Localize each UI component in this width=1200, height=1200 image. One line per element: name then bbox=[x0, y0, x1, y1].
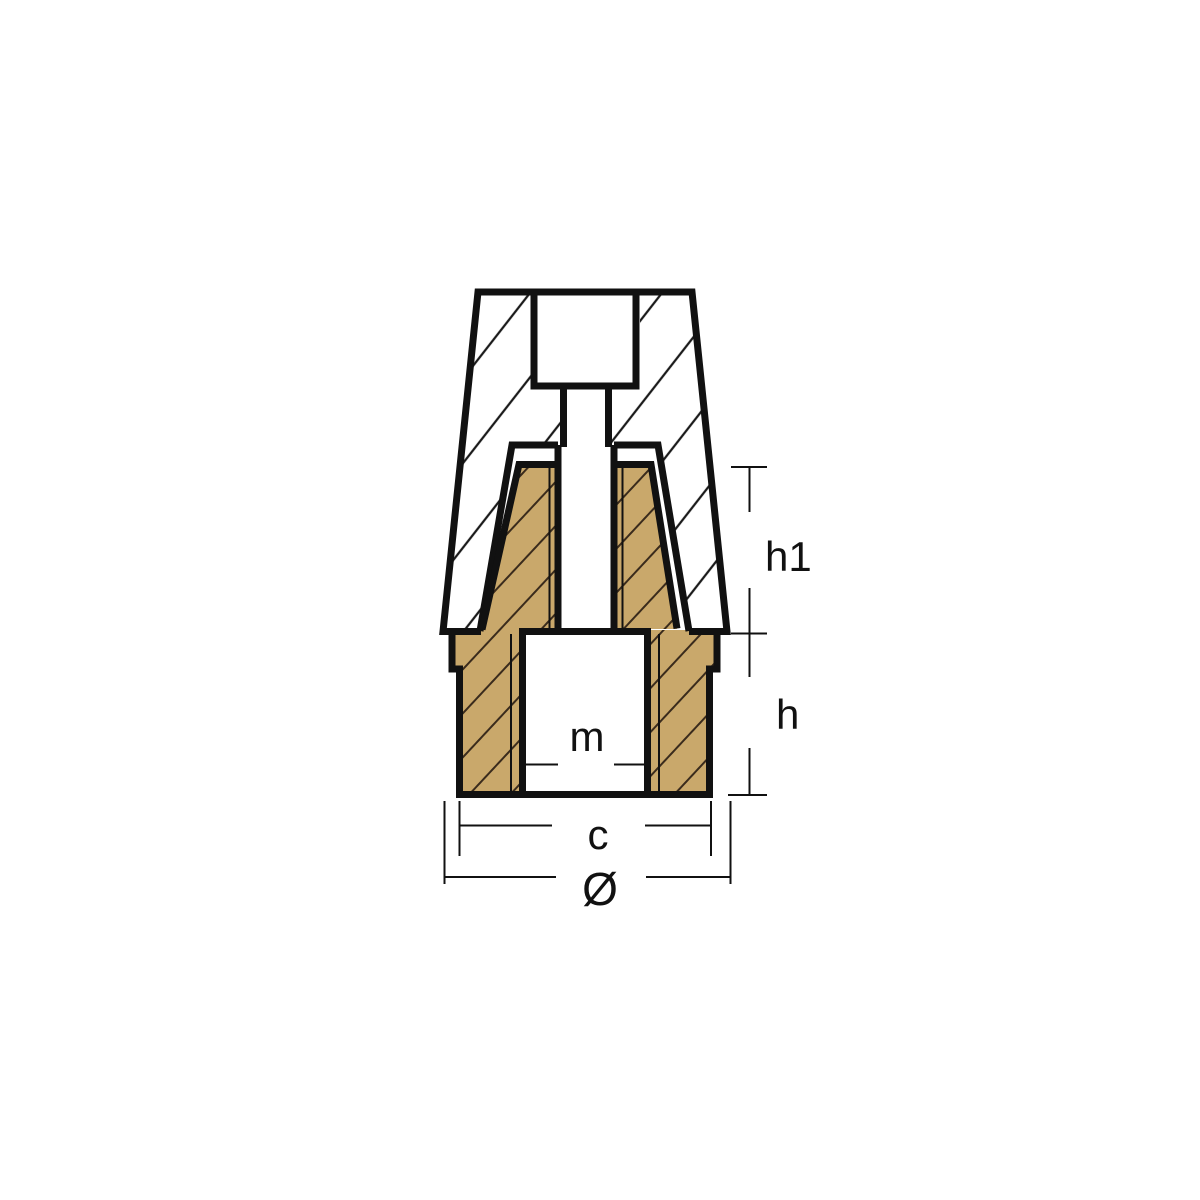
label-h: h bbox=[776, 691, 799, 738]
label-h1: h1 bbox=[765, 533, 812, 580]
stud-hole-stem bbox=[564, 386, 609, 447]
label-m: m bbox=[570, 713, 605, 760]
label-c: c bbox=[588, 811, 609, 858]
label-diameter: Ø bbox=[582, 863, 618, 915]
threaded-bore bbox=[523, 630, 648, 794]
top-recess bbox=[531, 289, 640, 389]
stud-hole-column bbox=[558, 445, 614, 631]
anode-sectional-drawing: h1 h c Ø m bbox=[0, 0, 1200, 1200]
drawing-canvas: h1 h c Ø m bbox=[0, 0, 1200, 1200]
